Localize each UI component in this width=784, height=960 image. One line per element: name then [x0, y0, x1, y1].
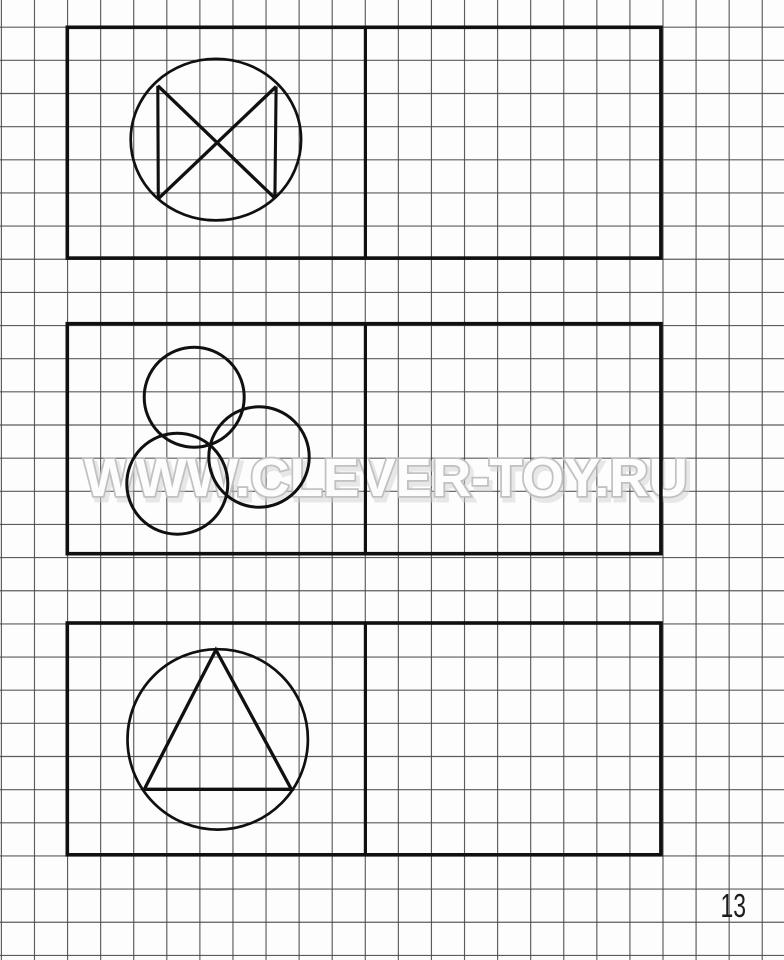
svg-text:WWW.CLEVER-TOY.RU: WWW.CLEVER-TOY.RU	[84, 448, 688, 508]
svg-text:13: 13	[721, 887, 747, 924]
